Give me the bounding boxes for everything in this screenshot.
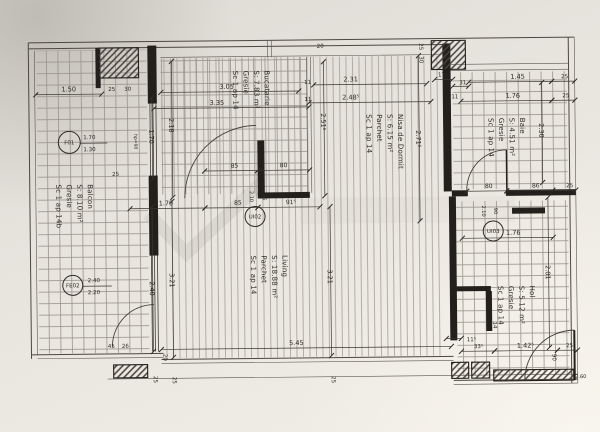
dimension-label: 1.42⁵ (517, 342, 535, 350)
dimension-label: 33⁵ (474, 343, 483, 350)
room-name: Hol (528, 286, 536, 298)
room-scale: Sc 1 ap 14 (249, 255, 257, 294)
dimension: 26 (122, 344, 130, 350)
pillar-top-right (431, 40, 465, 69)
dimension: 30 (124, 87, 132, 93)
room-name: Living (280, 255, 288, 277)
dimension-label: 30 (124, 87, 132, 93)
room-area: S: 8.10 m² (75, 184, 83, 223)
opening-height: 2.20 (88, 290, 101, 296)
room-area: S: 4.51 m² (508, 118, 516, 157)
dimension-label: 25 (108, 87, 116, 93)
dimension-label: 86 (532, 182, 540, 189)
opening-code: FE02 (66, 283, 80, 289)
dimension-label: 2.18 (167, 118, 175, 133)
dimension: 11 (304, 97, 311, 103)
dimension-label: 31 (459, 80, 466, 86)
dimension: 90 (492, 208, 498, 214)
dimension-label: 3.21 (326, 269, 334, 284)
room-scale: Sc 1 ap 14 (487, 118, 495, 157)
room-floor: Gresie (242, 71, 250, 95)
dimension-label: 25 (562, 93, 570, 99)
dimension: 2.10 (248, 191, 254, 202)
dimension: 25 (152, 376, 158, 384)
room-scale: Sc 1 ap 14 (231, 71, 239, 110)
dimension: 45 (108, 344, 116, 350)
opening-code: UI02 (249, 214, 262, 220)
dimension-label: 1.76 (506, 229, 521, 237)
pillar-bottom-left (114, 365, 148, 378)
room-floor: Parchet (375, 114, 383, 142)
room-area: S: 18.88 m² (270, 255, 278, 298)
dimension: 2.60 (575, 374, 586, 380)
dimension-label: 26 (122, 344, 130, 350)
dimension-label: 2.48⁵ (342, 93, 360, 101)
dimension: 11 (451, 94, 458, 100)
dimension-label: 25 (330, 376, 336, 384)
dimension-label: 2.51⁵ (319, 113, 327, 131)
dimension: 25 (171, 377, 177, 385)
dimension-label: 2.71⁵ (414, 130, 422, 148)
dimension-label: 17⁵ (438, 71, 447, 78)
dimension-label: 20 (317, 44, 325, 50)
dimension: 2.10 (480, 205, 486, 216)
dimension-label: 2.40 (148, 281, 156, 296)
entrance-door-leaf (574, 330, 575, 380)
room-name: Balcon (86, 184, 94, 209)
dimension-label: 25 (566, 343, 574, 349)
room-scale: Sc 1 ap 14b (54, 184, 62, 228)
opening-width: 2.40 (88, 278, 101, 284)
dimension: 25 (112, 172, 120, 178)
dimension: 20 (161, 354, 167, 362)
dimension-label: 85 (234, 200, 242, 207)
dimension-label: 25 (417, 43, 423, 51)
dimension-label: 85 (231, 163, 239, 170)
opening-code: UI03 (487, 229, 500, 235)
entrance-threshold (494, 369, 574, 381)
dimension-label: 25 (171, 377, 177, 385)
dimension-label: 2.30 (537, 123, 545, 138)
dimension-label: 3.21 (168, 273, 176, 288)
dimension-label: 80 (280, 162, 288, 169)
dimension-label: 25 (566, 183, 574, 189)
dimension-label: 85 (261, 194, 267, 200)
room-scale: Sc 1 ap 14 (365, 114, 373, 153)
room-scale: Sc 1 ap 14 (496, 286, 504, 325)
opening-height: 1.30 (83, 147, 96, 153)
dimension-label: 11 (451, 94, 458, 100)
dimension-label: 80 (485, 183, 493, 190)
room-floor: Gresie (65, 184, 73, 208)
dimension-label: 1.70 (159, 199, 174, 207)
dimension: 85 (261, 194, 267, 200)
dimension-label: 1.50 (61, 85, 76, 93)
room-area: S: 5.12 m² (517, 286, 525, 325)
dimension-label: 2.01 (544, 265, 552, 280)
room-name: Bucatarie (263, 70, 271, 105)
room-floor: Gresie (507, 286, 515, 310)
dimension-label: 1.76 (506, 92, 521, 100)
dimension: 25 (108, 87, 116, 93)
dimension-label: 90 (551, 354, 557, 362)
dimension-label: 3.35 (210, 99, 225, 107)
dimension: 14 (491, 321, 497, 329)
dimension-label: 25 (112, 172, 120, 178)
dimension-label: 11⁵ (467, 336, 476, 343)
dimension-label: 25 (561, 74, 569, 80)
opening-code: F01 (64, 140, 74, 146)
dimension-label: 90 (492, 208, 498, 214)
dimension: 25 (330, 376, 336, 384)
dimension-label: 2.31 (343, 75, 358, 83)
dimension-label: 11 (304, 80, 311, 86)
dimension-label: 14 (491, 321, 497, 329)
dimension: 90 (551, 354, 557, 362)
dimension-label: 20 (161, 354, 167, 362)
room-floor: Gresie (497, 118, 505, 142)
dimension: 11 (304, 80, 311, 86)
dimension: 25 (417, 43, 423, 51)
pillar-top-left (98, 48, 138, 78)
room-area: S: 7.83 m² (252, 70, 260, 109)
dimension-label: 11 (304, 97, 311, 103)
pillar-hall-mid (472, 362, 490, 378)
dimension: 11⁵ (467, 336, 476, 343)
dimension-label: 2.10 (480, 205, 486, 216)
floor-plan-drawing: 1.5025303.053.352.312.48⁵201111253017⁵31… (0, 0, 600, 432)
dimension-label: 91⁵ (286, 199, 297, 206)
dimension-label: 1.45 (510, 73, 525, 81)
room-name: Baie (518, 118, 526, 134)
scanned-floor-plan-photo: 1.5025303.053.352.312.48⁵201111253017⁵31… (0, 0, 600, 432)
opening-width: 1.70 (83, 135, 96, 141)
plan-group: 1.5025303.053.352.312.48⁵201111253017⁵31… (28, 37, 586, 389)
dimension-label: 5.45 (289, 339, 304, 347)
dimension-label: 2.60 (575, 374, 586, 380)
dimension-label: 15 (450, 331, 458, 337)
dimension-label: 45 (108, 344, 116, 350)
room-area: S: 6.15 m² (386, 114, 394, 153)
dimension-label: 25 (152, 376, 158, 384)
dimension: hp=90 (132, 134, 138, 149)
dimension-label: hp=90 (132, 134, 138, 149)
dimension: 20 (317, 44, 325, 50)
dimension-label: 2.10 (248, 191, 254, 202)
pillar-hall-left (452, 362, 469, 378)
room-name: Nisa de Dormit (396, 114, 405, 169)
room-floor: Parchet (259, 255, 267, 283)
dimension-label: 1.70 (147, 129, 155, 144)
